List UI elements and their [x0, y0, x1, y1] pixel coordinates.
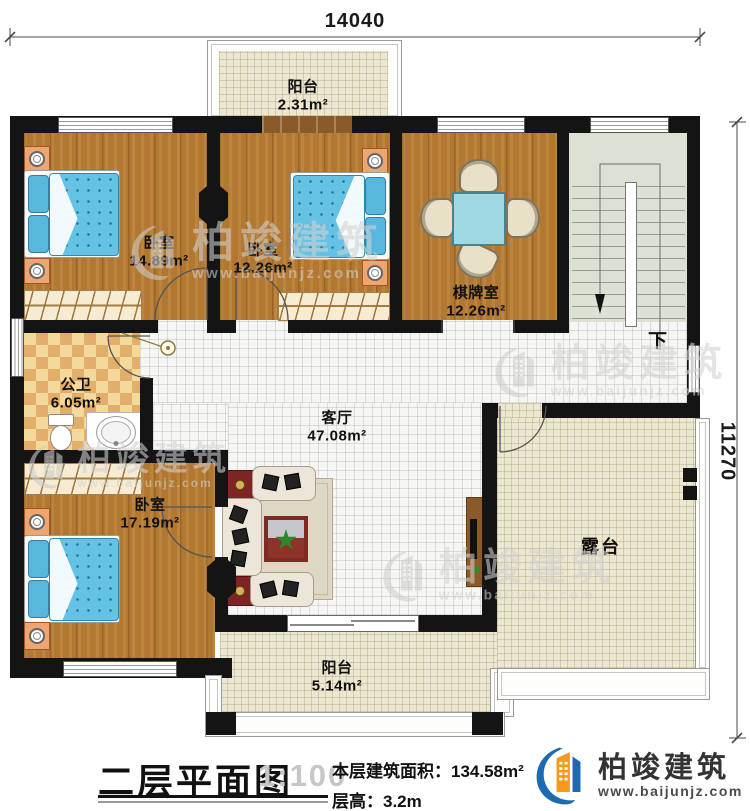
title-underline [98, 801, 328, 803]
sheet-floor-height-info: 层高：3.2m [332, 787, 422, 811]
room-label-mahjong: 棋牌室 12.26m² [446, 284, 505, 319]
plan-annotations-svg [0, 0, 750, 811]
room-label-balcony-bottom: 阳台 5.14m² [312, 659, 363, 694]
door-arc [500, 406, 546, 452]
brand-website: www.baijunjz.com [598, 783, 743, 799]
door-arc [155, 268, 207, 320]
room-label-living: 客厅 47.08m² [307, 409, 366, 444]
dimension-right-value: 11270 [716, 412, 739, 492]
dimension-top-value: 14040 [300, 10, 410, 33]
floor-plan-sheet: 阳台 2.31m² 卧室 14.89m² 卧室 12.26m² 棋牌室 12.2… [0, 0, 750, 811]
brand-name: 柏竣建筑 [598, 753, 743, 783]
door-arc [108, 336, 150, 378]
brand-logo: 柏竣建筑 www.baijunjz.com [532, 745, 743, 807]
stairs-down-arrow-icon [595, 294, 605, 314]
room-label-bedroom2: 卧室 12.26m² [233, 241, 292, 276]
room-label-terrace: 露台 [581, 533, 621, 559]
stairs-walk-line [600, 164, 660, 350]
title-underline [98, 795, 328, 798]
sheet-area-info: 本层建筑面积：134.58m² [332, 757, 524, 782]
stairs-down-label: 下 [648, 326, 667, 353]
room-label-bathroom: 公卫 6.05m² [51, 376, 102, 411]
room-label-bedroom3: 卧室 17.19m² [120, 496, 179, 531]
room-label-balcony-top: 阳台 2.31m² [278, 78, 329, 113]
brand-logo-icon [532, 745, 590, 807]
room-label-bedroom1: 卧室 14.89m² [129, 234, 188, 269]
